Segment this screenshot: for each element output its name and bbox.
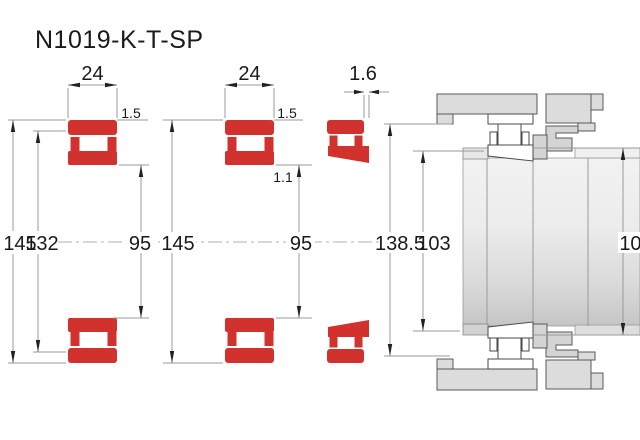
mounting-drawing (437, 94, 640, 390)
dim-fig2-chamfer-outer: 1.5 (277, 105, 297, 121)
inner-ring-flange (228, 137, 237, 153)
roller-outline (498, 124, 521, 145)
dim-fig1-raceway-diameter: 132 (25, 233, 58, 255)
dim-fig3-shaft-abutment: 103 (417, 233, 450, 255)
housing-top-right (546, 94, 591, 123)
shaft-surface-right-top (575, 148, 640, 158)
housing-step-bottom (578, 352, 595, 360)
housing-bottom-right (546, 360, 591, 389)
mounted-bearing-top-section (488, 114, 533, 161)
bearing-dimension-drawing: N1019-K-T-SP 24 1.5 145 132 95 24 1.5 1.… (0, 0, 640, 440)
housing-shoulder-bottom (437, 359, 453, 369)
inner-ring (68, 151, 117, 165)
inner-ring (68, 318, 117, 332)
outer-ring-outline (488, 114, 533, 124)
housing-top-left (437, 94, 537, 114)
housing-corner-bottom (591, 373, 603, 389)
inner-ring-flange-outline (522, 132, 529, 145)
inner-ring-flange (71, 330, 80, 346)
roller-outline (498, 338, 521, 359)
outer-ring (327, 120, 364, 134)
spacer-ring-bottom (533, 324, 547, 348)
shaft-surface-right-bottom (575, 325, 640, 335)
inner-ring-flange (108, 330, 117, 346)
outer-ring (68, 348, 117, 363)
inner-ring-flange (228, 330, 237, 346)
inner-ring-flange (108, 137, 117, 153)
inner-ring-flange-outline (490, 132, 497, 145)
outer-ring (225, 120, 274, 135)
inner-ring-flange (265, 137, 274, 153)
inner-ring-flange (265, 330, 274, 346)
inner-ring-flange-outline (490, 338, 497, 351)
labyrinth-ring-top (546, 126, 578, 151)
inner-ring-flange-outline (522, 338, 529, 351)
inner-ring (225, 318, 274, 332)
dim-right-abutment: 105 (619, 233, 640, 255)
drawing-svg: N1019-K-T-SP 24 1.5 145 132 95 24 1.5 1.… (0, 0, 640, 440)
housing-step-top (578, 123, 595, 131)
dim-fig3-drive-up: 1.6 (349, 63, 377, 85)
shaft-shoulder-bottom (463, 324, 488, 335)
shaft-body (463, 158, 640, 326)
outer-ring-outline (488, 359, 533, 369)
dim-fig1-width: 24 (81, 63, 103, 85)
shaft-shoulder-top (463, 148, 488, 159)
inner-ring-flange (71, 137, 80, 153)
housing-bottom-left (437, 369, 537, 390)
inner-ring-tapered (328, 146, 369, 163)
spacer-ring-top (533, 135, 547, 159)
dim-fig2-outer-diameter: 145 (161, 233, 194, 255)
inner-ring (225, 151, 274, 165)
housing-shoulder-top (437, 114, 453, 124)
dim-fig2-chamfer-inner: 1.1 (273, 169, 293, 185)
dim-fig1-bore-diameter: 95 (129, 233, 151, 255)
drawing-title: N1019-K-T-SP (35, 26, 204, 54)
housing-corner-top (591, 94, 603, 110)
mounted-bearing-bottom-section (488, 322, 533, 369)
dim-fig1-chamfer-outer: 1.5 (121, 105, 141, 121)
dim-fig2-width: 24 (238, 63, 260, 85)
inner-ring-flange (355, 334, 363, 348)
inner-ring-flange (330, 334, 338, 348)
outer-ring (225, 348, 274, 363)
outer-ring (327, 349, 364, 363)
labyrinth-ring-bottom (546, 332, 578, 357)
dim-fig2-bore-diameter: 95 (290, 233, 312, 255)
outer-ring (68, 120, 117, 135)
